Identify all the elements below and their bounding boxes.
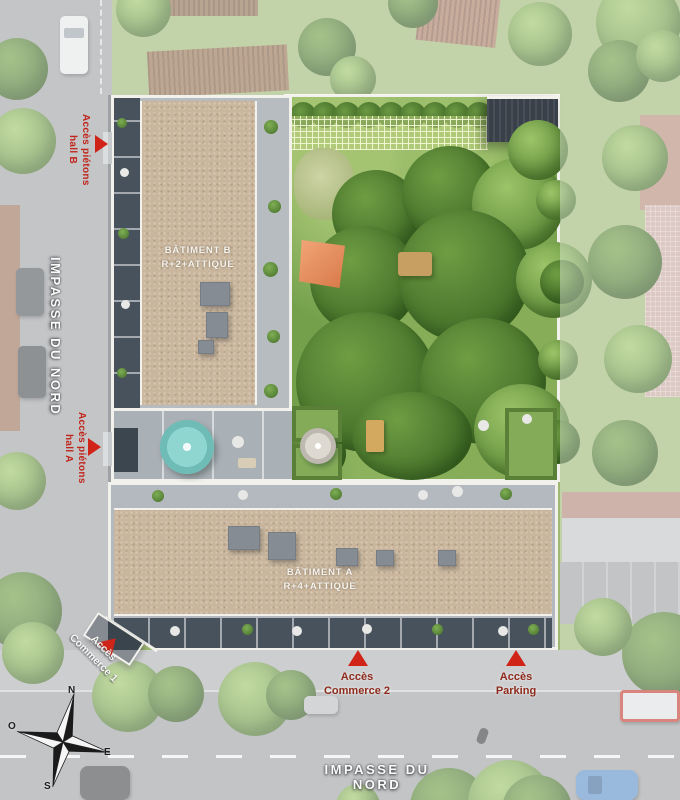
tree	[636, 30, 680, 82]
compass-south-label: S	[44, 781, 51, 792]
tree	[574, 598, 632, 656]
balcony-plant	[118, 228, 129, 239]
balcony-plant	[117, 118, 127, 128]
balcony-plant	[432, 624, 443, 635]
car	[576, 770, 638, 800]
parasol-white	[300, 428, 336, 464]
neighbour-roof	[0, 205, 20, 431]
compass-west-label: O	[8, 721, 16, 732]
plant	[267, 330, 280, 343]
shade-sail	[299, 240, 345, 288]
neighbour-roof	[147, 44, 289, 97]
trellis-mesh	[288, 116, 488, 150]
triangle-marker-icon	[95, 135, 108, 153]
access-hall-b-line2: hall B	[66, 96, 79, 204]
balcony-plant	[242, 624, 253, 635]
access-commerce-2-label: Accès Commerce 2	[307, 670, 407, 699]
plant	[330, 488, 342, 500]
triangle-marker-icon	[506, 650, 526, 666]
terrace-lounge	[238, 458, 256, 468]
road-edge-line	[100, 0, 102, 94]
plant	[264, 384, 278, 398]
street-label-impasse-du-nord-south: IMPASSE DU NORD	[302, 762, 452, 792]
rooftop-unit	[268, 532, 296, 560]
rooftop-unit	[336, 548, 358, 566]
access-hall-a-line2: hall A	[62, 396, 75, 500]
truck	[620, 690, 680, 722]
tree	[508, 2, 572, 66]
building-b-name: BÂTIMENT B	[139, 244, 257, 258]
building-b-levels: R+2+ATTIQUE	[139, 258, 257, 272]
access-hall-b-label: Accès piétons hall B	[66, 96, 92, 204]
plant	[264, 120, 278, 134]
building-a-levels: R+4+ATTIQUE	[250, 580, 390, 594]
neighbour-building	[562, 492, 680, 518]
tree	[148, 666, 204, 722]
access-parking-line2: Parking	[476, 684, 556, 698]
rooftop-unit	[376, 550, 394, 566]
compass-east-label: E	[104, 747, 111, 758]
site-plan: IMPASSE DU NORD IMPASSE DU NORD BÂTIMENT…	[0, 0, 680, 800]
triangle-marker-icon	[348, 650, 368, 666]
access-commerce-2-line2: Commerce 2	[307, 684, 407, 698]
compass-rose: N O E S	[8, 685, 118, 800]
hall-a-entrance	[114, 428, 138, 472]
tree	[2, 622, 64, 684]
bush	[538, 340, 578, 380]
neighbour-building	[562, 518, 680, 562]
triangle-marker-icon	[88, 438, 101, 456]
building-a-label: BÂTIMENT A R+4+ATTIQUE	[250, 566, 390, 594]
access-hall-a-line1: Accès piétons	[75, 396, 88, 500]
terrace-table	[238, 490, 248, 500]
car-windshield	[588, 776, 602, 794]
car	[60, 16, 88, 74]
access-parking-label: Accès Parking	[476, 670, 556, 699]
terrace-table	[232, 436, 244, 448]
terrace-table	[452, 486, 463, 497]
hall-a-entry-mat	[103, 432, 112, 466]
balcony-table	[120, 168, 129, 177]
balcony-plant	[528, 624, 539, 635]
plant	[263, 262, 278, 277]
plant	[152, 490, 164, 502]
access-hall-a-label: Accès piétons hall A	[62, 396, 88, 500]
balcony-table	[292, 626, 302, 636]
car-windshield	[64, 28, 84, 38]
rooftop-unit	[198, 340, 214, 354]
access-parking-line1: Accès	[476, 670, 556, 684]
rooftop-unit	[438, 550, 456, 566]
parasol-teal	[160, 420, 214, 474]
access-commerce-2-line1: Accès	[307, 670, 407, 684]
terrace-table	[418, 490, 428, 500]
terrace-table	[366, 420, 384, 452]
rooftop-unit	[200, 282, 230, 306]
terrace-table	[478, 420, 489, 431]
building-a-roof	[114, 508, 552, 616]
tree	[602, 125, 668, 191]
tree	[588, 225, 662, 299]
terrace-table	[522, 414, 532, 424]
tree	[116, 0, 171, 37]
plant	[500, 488, 512, 500]
compass-star-icon	[8, 685, 118, 800]
balcony-plant	[117, 368, 127, 378]
plant	[268, 200, 281, 213]
car	[18, 346, 46, 398]
balcony-table	[170, 626, 180, 636]
balcony-table	[121, 300, 130, 309]
balcony-table	[362, 624, 372, 634]
building-a-balconies-south	[114, 618, 552, 648]
access-hall-b-line1: Accès piétons	[79, 96, 92, 204]
car	[304, 696, 338, 714]
building-a-name: BÂTIMENT A	[250, 566, 390, 580]
building-b-balconies-west	[114, 98, 140, 408]
rooftop-unit	[228, 526, 260, 550]
car	[16, 268, 44, 316]
building-b-label: BÂTIMENT B R+2+ATTIQUE	[139, 244, 257, 272]
bush	[540, 260, 584, 304]
street-label-impasse-du-nord-west: IMPASSE DU NORD	[48, 252, 63, 422]
picnic-table	[398, 252, 432, 276]
balcony-table	[498, 626, 508, 636]
compass-north-label: N	[68, 685, 75, 696]
tree	[508, 120, 568, 180]
tree	[592, 420, 658, 486]
bush	[536, 180, 576, 220]
building-b-walkway-east	[259, 98, 289, 408]
rooftop-unit	[206, 312, 228, 338]
tree	[604, 325, 672, 393]
